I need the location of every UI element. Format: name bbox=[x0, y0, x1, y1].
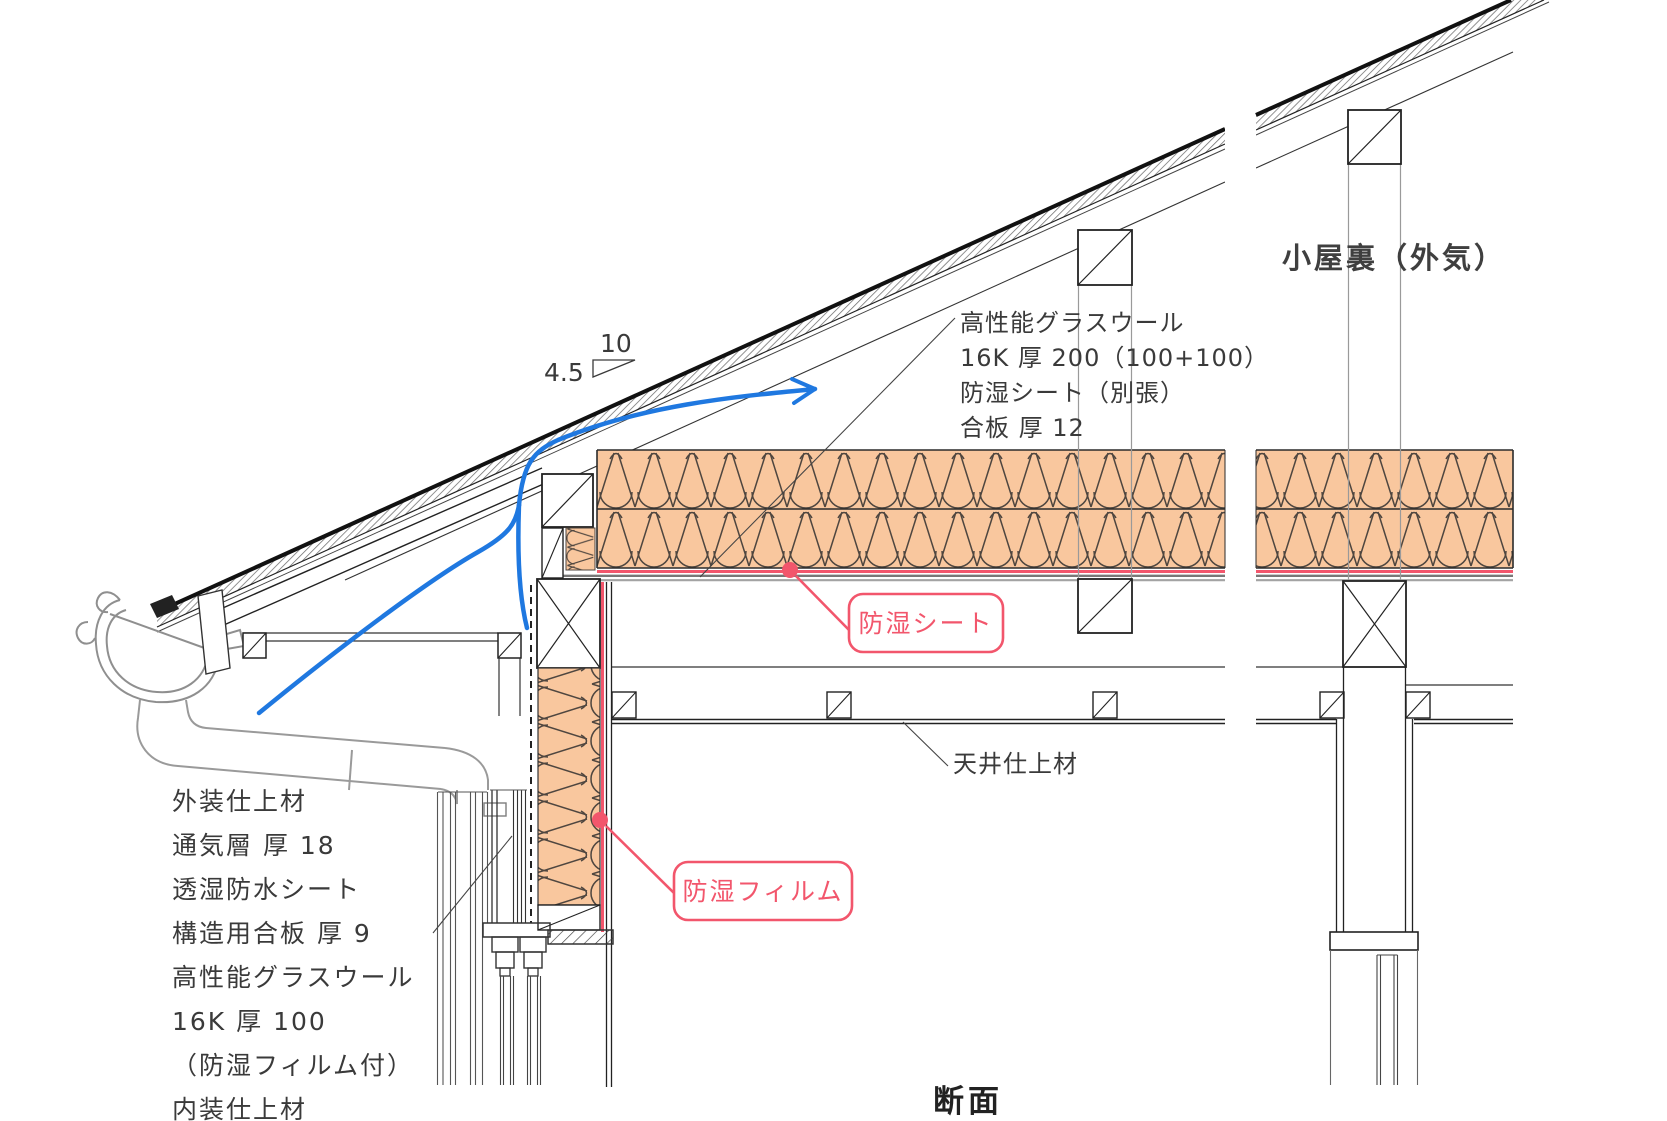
callout-dot bbox=[592, 812, 608, 828]
slope-rise-value: 4.5 bbox=[544, 358, 584, 387]
vapor-film-label: 防湿フィルム bbox=[682, 877, 843, 906]
roof-note-line-4: 合板 厚 12 bbox=[960, 414, 1085, 442]
section-drawing-page: 防湿シート 防湿フィルム 高性能グラスウール 16K 厚 200（100+100… bbox=[0, 0, 1667, 1121]
wall-note-line-7: （防湿フィルム付） bbox=[172, 1051, 414, 1080]
ceiling-frame bbox=[612, 667, 1513, 685]
slope-triangle bbox=[593, 360, 635, 377]
roof-note-line-1: 高性能グラスウール bbox=[960, 309, 1185, 337]
wall-note-line-2: 通気層 厚 18 bbox=[172, 831, 336, 860]
ceiling-label-leader bbox=[903, 722, 948, 766]
eaves-soffit bbox=[198, 590, 521, 716]
drawing-break bbox=[1225, 118, 1256, 198]
callout-dot bbox=[782, 562, 798, 578]
roof-note-line-2: 16K 厚 200（100+100） bbox=[960, 344, 1269, 372]
section-drawing: 防湿シート 防湿フィルム 高性能グラスウール 16K 厚 200（100+100… bbox=[0, 0, 1667, 1121]
vapor-film-callout: 防湿フィルム bbox=[592, 812, 852, 920]
wall-note-line-5: 高性能グラスウール bbox=[172, 963, 415, 992]
window-glazing bbox=[501, 976, 541, 1085]
ceiling-plywood bbox=[563, 576, 1513, 580]
attic-space-label: 小屋裏（外気） bbox=[1282, 241, 1506, 275]
wall-note-leader bbox=[433, 836, 512, 933]
ceiling-insulation bbox=[597, 450, 1513, 568]
wall-note-line-4: 構造用合板 厚 9 bbox=[172, 919, 372, 948]
wall-note-line-3: 透湿防水シート bbox=[172, 875, 361, 904]
slope-run-value: 10 bbox=[600, 329, 632, 358]
blocking-insulation bbox=[566, 528, 595, 570]
wall-note-line-8: 内装仕上材 bbox=[172, 1095, 307, 1121]
wall-note-line-6: 16K 厚 100 bbox=[172, 1007, 327, 1036]
interior-wall-right bbox=[1330, 667, 1418, 1085]
drawing-title: 断面 bbox=[933, 1084, 1003, 1120]
wall-insulation bbox=[538, 668, 600, 905]
roof-assembly-note: 高性能グラスウール 16K 厚 200（100+100） 防湿シート（別張） 合… bbox=[960, 309, 1269, 442]
vapor-sheet-label: 防湿シート bbox=[858, 609, 993, 638]
fascia-board bbox=[198, 590, 230, 674]
ceiling-finish-label: 天井仕上材 bbox=[953, 750, 1078, 778]
wall-assembly-note: 外装仕上材 通気層 厚 18 透湿防水シート 構造用合板 厚 9 高性能グラスウ… bbox=[172, 787, 415, 1121]
window-head-blocking bbox=[548, 930, 613, 944]
ceiling-furring bbox=[612, 692, 1430, 718]
roof-note-line-3: 防湿シート（別張） bbox=[960, 379, 1185, 407]
wall-note-line-1: 外装仕上材 bbox=[172, 787, 307, 816]
slope-marker: 10 4.5 bbox=[544, 329, 635, 387]
exterior-wall bbox=[490, 474, 612, 1087]
ceiling-finish bbox=[612, 720, 1513, 724]
attic-strut-right bbox=[1343, 110, 1406, 667]
